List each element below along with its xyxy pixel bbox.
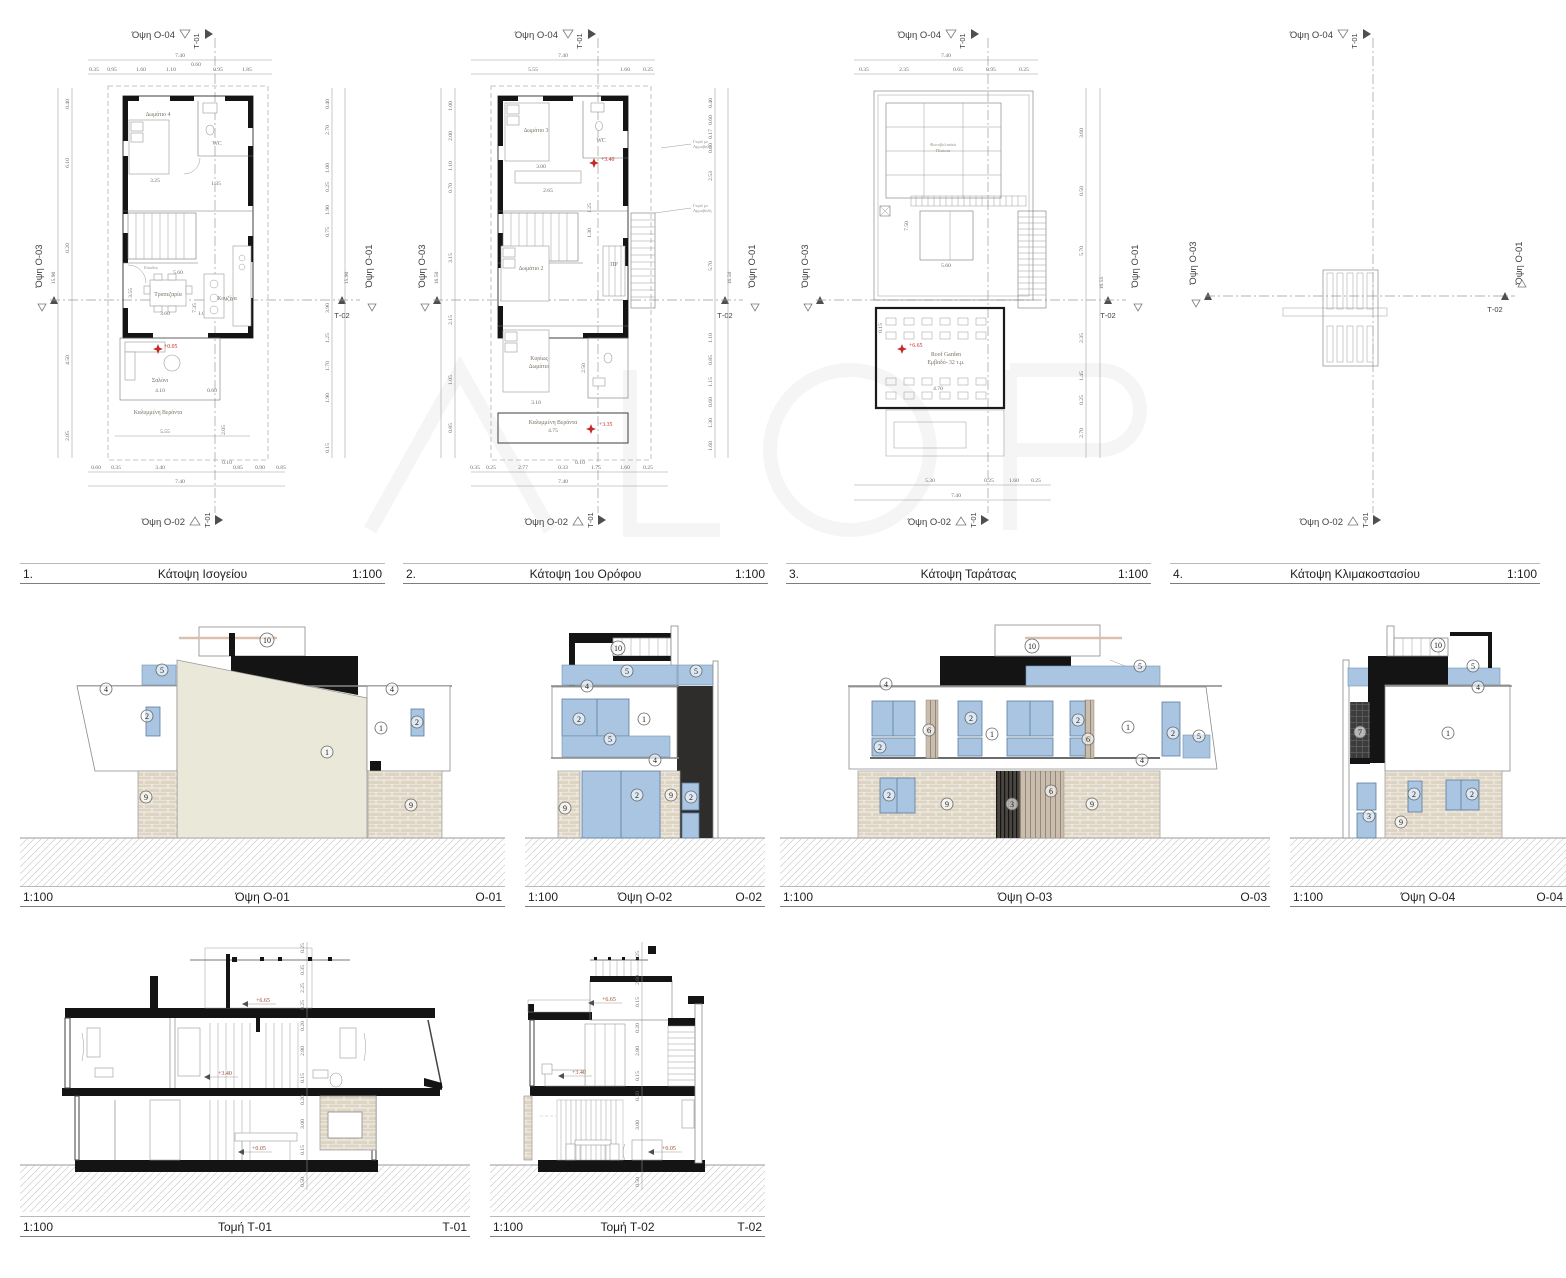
- room-label: Δωμάτιο: [529, 364, 550, 370]
- callout-label: 1: [990, 730, 994, 739]
- dim-label: 0.20: [635, 1023, 641, 1033]
- elevation-o02-titlebar: 1:100 Όψη Ο-02 Ο-02: [525, 886, 765, 907]
- section-label-t01: Τ-01: [586, 512, 595, 527]
- dim-label: 1.30: [708, 418, 714, 428]
- ground-hatch: [525, 838, 765, 886]
- section-arrow-icon: [205, 29, 213, 39]
- dim-label: 0.65: [953, 67, 963, 73]
- stairs: [128, 213, 196, 259]
- dim-label: 0.35: [859, 67, 869, 73]
- edge-label-top: Όψη Ο-04: [514, 30, 558, 41]
- elevation-title: Όψη Ο-02: [618, 890, 673, 904]
- section-label-t01: Τ-01: [1361, 512, 1370, 527]
- dim-label: 0.25: [486, 465, 496, 471]
- room-label: Σαλόνι: [152, 378, 169, 384]
- dim-label: 7.40: [175, 479, 185, 485]
- dim-label: 0.20: [300, 1095, 306, 1105]
- level-label: +3.40: [572, 1070, 586, 1076]
- edge-label-right: Όψη Ο-01: [364, 244, 375, 288]
- callout-label: 5: [160, 666, 164, 675]
- dim-label: 1.60: [1009, 478, 1019, 484]
- room-label: Δωμάτιο 4: [146, 112, 171, 118]
- ground-hatch: [780, 838, 1270, 886]
- dim-label: 3.90: [325, 303, 331, 313]
- callout-label: 4: [585, 682, 589, 691]
- callout-label: 2: [887, 791, 891, 800]
- ground-hatch: [20, 838, 505, 886]
- dim-label: 0.60: [708, 115, 714, 125]
- plan2-dim-left: 1.00 2.00 1.10 0.70 3.15 2.15 1.05 0.85 …: [434, 88, 455, 458]
- elevation-code: Ο-04: [1536, 890, 1563, 904]
- callout-label: 2: [689, 793, 693, 802]
- dim-label: 3.10: [531, 400, 541, 406]
- edge-label-bottom: Όψη Ο-02: [907, 517, 951, 528]
- plan2-notes: Γκριλ με Αμμοβολή Γκριλ με Αμμοβολή: [655, 139, 712, 213]
- section-t01-titlebar: 1:100 Τομή Τ-01 Τ-01: [20, 1216, 470, 1237]
- dim-label: 5.70: [1079, 246, 1085, 256]
- plan2-building: Δωμάτιο 3 3.00 2.65 WC +3.40 1.25 1.30 Δ…: [491, 86, 655, 460]
- dim-label: 4.70: [933, 386, 943, 392]
- t01-dim-chain: 0.25 0.35 2.25 0.25 0.20 2.80 0.15 0.20 …: [300, 942, 307, 1190]
- callout-label: 3: [1010, 800, 1014, 809]
- dim-label: 0.15: [300, 1073, 306, 1083]
- callout-label: 2: [1470, 790, 1474, 799]
- elevation-code: Ο-01: [475, 890, 502, 904]
- callout-label: 9: [563, 804, 567, 813]
- elevation-code: Ο-02: [735, 890, 762, 904]
- dim-label: 3.60: [160, 311, 170, 317]
- dim-label: 0.25: [325, 182, 331, 192]
- o03-lower-slats: [1020, 771, 1064, 838]
- callout-label: 2: [577, 715, 581, 724]
- dim-label: 0.60: [191, 62, 201, 68]
- dim-label: 0.20: [635, 1091, 641, 1101]
- plan1-building: Δωμάτιο 4 3.25 1.35 WC Είσοδος 5.60 3.55…: [108, 86, 268, 460]
- dim-label: 1.45: [1079, 371, 1085, 381]
- elevation-marker-icon: [190, 517, 200, 525]
- plan3-dim-bottom: 5.30 0.25 1.60 0.25 7.40: [854, 478, 1051, 500]
- callout-label: 2: [1076, 716, 1080, 725]
- bathroom: [588, 338, 628, 398]
- ground-hatch: [490, 1165, 765, 1212]
- section-label-t01: Τ-01: [958, 33, 967, 48]
- edge-label-top: Όψη Ο-04: [131, 30, 175, 41]
- dim-label: 0.85: [708, 355, 714, 365]
- callout-label: 2: [1412, 790, 1416, 799]
- callout-label: 5: [625, 667, 629, 676]
- dim-label: 1.60: [136, 67, 146, 73]
- callout-label: 9: [1090, 800, 1094, 809]
- edge-label-top: Όψη Ο-04: [897, 30, 941, 41]
- plan2-dim-right: 0.40 0.60 0.17 0.60 2.53 5.70 1.10 0.85 …: [708, 88, 733, 458]
- elevation-scale: 1:100: [528, 890, 558, 904]
- dim-label: 1.70: [325, 361, 331, 371]
- dim-label: 2.70: [1079, 428, 1085, 438]
- plan3-titlebar: 3. Κάτοψη Ταράτσας 1:100: [786, 563, 1151, 584]
- edge-label-bottom: Όψη Ο-02: [1299, 517, 1343, 528]
- callout-label: 10: [1434, 641, 1442, 650]
- callout-label: 3: [1367, 812, 1371, 821]
- section-code: Τ-01: [442, 1220, 467, 1234]
- t02-desk: [623, 1100, 694, 1160]
- dim-label: 0.15: [635, 997, 641, 1007]
- o02-blue-band-left: [562, 665, 677, 685]
- section-arrow-icon: [215, 515, 223, 525]
- edge-label-left: Όψη Ο-03: [1188, 241, 1199, 285]
- edge-label-bottom: Όψη Ο-02: [141, 517, 185, 528]
- room-label: Κυρίως: [530, 356, 548, 362]
- dim-label: 0.25: [643, 67, 653, 73]
- elevation-code: Ο-03: [1240, 890, 1267, 904]
- callout-label: 4: [653, 756, 657, 765]
- dim-label: 3.00: [635, 1120, 641, 1130]
- callout-label: 1: [1446, 729, 1450, 738]
- dim-label: 1.75: [591, 465, 601, 471]
- level-label: +6.65: [256, 998, 270, 1004]
- plan3-dim-right: 3.60 0.50 5.70 2.35 1.45 0.25 2.70 16.55: [1079, 88, 1105, 458]
- o01-stone-pier-left: [138, 771, 177, 838]
- callout-label: 5: [1197, 732, 1201, 741]
- dim-label: 2.70: [325, 125, 331, 135]
- dim-label: 1.90: [325, 393, 331, 403]
- level-label: +3.40: [601, 157, 615, 163]
- pergola-ticks: [911, 196, 1026, 206]
- dim-label: 0.25: [984, 478, 994, 484]
- dim-label: 1.10: [448, 161, 454, 171]
- callout-label: 5: [608, 735, 612, 744]
- dim-label: 15.90: [344, 272, 350, 285]
- dim-label: 0.15: [325, 443, 331, 453]
- callout-label: 1: [325, 748, 329, 757]
- callout-label: 9: [945, 800, 949, 809]
- roof-unit: [920, 211, 973, 260]
- callout-label: 10: [1028, 642, 1036, 651]
- callout-label: 9: [669, 791, 673, 800]
- elevation-marker-icon: [38, 304, 46, 311]
- dim-label: 7.40: [951, 493, 961, 499]
- elevation-o01: 10 5 4 2 1 4 2 1 9 9: [20, 608, 505, 886]
- plan-title: Κάτοψη Κλιμακοστασίου: [1290, 567, 1420, 581]
- dim-label: 0.35: [300, 965, 306, 975]
- dim-label: 1.25: [587, 203, 593, 213]
- level-label: +0.05: [252, 1146, 266, 1152]
- level-label: +0.05: [164, 344, 178, 350]
- callout-label: 10: [263, 636, 271, 645]
- callout-label: 5: [694, 667, 698, 676]
- closet: [603, 246, 625, 296]
- dim-label: 2.50: [581, 363, 587, 373]
- elevation-o01-titlebar: 1:100 Όψη Ο-01 Ο-01: [20, 886, 505, 907]
- elevation-scale: 1:100: [23, 890, 53, 904]
- section-label-t01: Τ-01: [203, 512, 212, 527]
- dim-label: 0.85: [276, 465, 286, 471]
- plan-first-floor: Όψη Ο-04 Τ-01 Όψη Ο-02 Τ-01 Όψη Ο-03 Όψη…: [403, 8, 768, 560]
- level-label: +3.40: [218, 1071, 232, 1077]
- plan2-centerlines: [433, 38, 743, 513]
- dim-label: 5.55: [528, 67, 538, 73]
- edge-label-top: Όψη Ο-04: [1289, 30, 1333, 41]
- dim-label: 7.40: [941, 53, 951, 59]
- dim-label: 0.40: [65, 99, 71, 109]
- dim-label: 2.00: [448, 131, 454, 141]
- dim-label: 2.05: [221, 425, 227, 435]
- plan3-centerlines: [816, 38, 1126, 513]
- plan1-dim-bottom: 0.60 0.35 3.40 0.10 0.85 0.90 0.85 7.40: [88, 460, 286, 486]
- dim-label: 1.30: [587, 228, 593, 238]
- stairs: [1018, 211, 1046, 308]
- callout-label: 1: [379, 724, 383, 733]
- dim-label: 2.65: [543, 188, 553, 194]
- bed-2: [501, 246, 549, 301]
- edge-label-left: Όψη Ο-03: [800, 244, 811, 288]
- level-marker: +6.65: [897, 343, 923, 354]
- dim-label: 1.90: [325, 205, 331, 215]
- dim-label: 1.60: [708, 441, 714, 451]
- t01-structure: [62, 976, 442, 1172]
- section-label-t01: Τ-01: [969, 512, 978, 527]
- room-label: Roof Garden: [931, 351, 961, 358]
- elevation-title: Όψη Ο-03: [998, 890, 1053, 904]
- plan-number: 3.: [789, 567, 799, 581]
- dim-label: 1.10: [708, 333, 714, 343]
- dim-label: 0.70: [448, 183, 454, 193]
- plan4-titlebar: 4. Κάτοψη Κλιμακοστασίου 1:100: [1170, 563, 1540, 584]
- section-scale: 1:100: [493, 1220, 523, 1234]
- plan4-stair-structure: [1283, 270, 1387, 366]
- section-t02-titlebar: 1:100 Τομή Τ-02 Τ-02: [490, 1216, 765, 1237]
- dim-label: 0.35: [89, 67, 99, 73]
- wc-fixtures: [591, 103, 604, 131]
- section-scale: 1:100: [23, 1220, 53, 1234]
- dim-label: 0.25: [1031, 478, 1041, 484]
- section-label-t01: Τ-01: [1350, 33, 1359, 48]
- dim-label: 0.15: [300, 1145, 306, 1155]
- o01-left-wing: [77, 686, 177, 771]
- callout-label: 4: [1476, 683, 1480, 692]
- dim-label: 1.05: [448, 375, 454, 385]
- t02-stair-shaft: [668, 1018, 695, 1086]
- section-label-t02: Τ-02: [717, 311, 732, 320]
- section-title: Τομή Τ-02: [600, 1220, 654, 1234]
- dim-label: 0.50: [635, 1177, 641, 1187]
- plan-ground-floor: Όψη Ο-04 Τ-01 Όψη Ο-02 Τ-01 Όψη Ο-03 Όψη…: [20, 8, 385, 560]
- roof-hatch-box: [880, 206, 890, 216]
- o02-white-fin: [713, 661, 718, 838]
- section-label-t02: Τ-02: [1487, 305, 1502, 314]
- dim-label: 0.40: [325, 99, 331, 109]
- dim-label: 3.55: [128, 288, 134, 298]
- dim-label: 1.60: [620, 67, 630, 73]
- plan3-dim-top: 7.40 0.35 2.35 0.65 0.95 0.25: [854, 53, 1038, 74]
- dim-label: 0.25: [300, 943, 306, 953]
- dim-label: 16.50: [727, 272, 733, 285]
- callout-label: 4: [884, 680, 888, 689]
- veranda: [498, 413, 628, 443]
- dim-label: 0.95: [107, 67, 117, 73]
- edge-label-bottom: Όψη Ο-02: [524, 517, 568, 528]
- callout-label: 2: [878, 743, 882, 752]
- callout-label: 2: [145, 712, 149, 721]
- plan-scale: 1:100: [352, 567, 382, 581]
- room-label: Είσοδος: [144, 265, 158, 270]
- plan-title: Κάτοψη 1ου Ορόφου: [530, 567, 642, 581]
- plan1-dim-right: 0.40 2.70 1.00 0.25 1.90 0.75 3.90 1.25 …: [325, 88, 350, 458]
- dim-label: 0.95: [986, 67, 996, 73]
- dim-label: 1.15: [708, 377, 714, 387]
- plan-title: Κάτοψη Ισογείου: [158, 567, 247, 581]
- dim-label: 5.60: [941, 263, 951, 269]
- callout-label: 4: [1140, 756, 1144, 765]
- dim-label: 1.35: [211, 181, 221, 187]
- section-t02: +6.65 +3.40 +0.05 0.25 2.60 0.15 0.20 2.…: [490, 928, 765, 1216]
- callout-label: 2: [969, 714, 973, 723]
- ground-hatch: [20, 1165, 470, 1212]
- dim-label: 2.05: [65, 431, 71, 441]
- dim-label: 0.33: [558, 465, 568, 471]
- callout-label: 5: [1471, 662, 1475, 671]
- plan2-titlebar: 2. Κάτοψη 1ου Ορόφου 1:100: [403, 563, 768, 584]
- elevation-o02: 10 5 5 4 2 1 5 4 9 2 9 2: [525, 608, 765, 886]
- elevation-title: Όψη Ο-01: [235, 890, 290, 904]
- dim-label: 1.25: [325, 333, 331, 343]
- plan-scale: 1:100: [1118, 567, 1148, 581]
- plan-stairwell: Όψη Ο-04 Τ-01 Όψη Ο-02 Τ-01 Όψη Ο-03 Όψη…: [1170, 8, 1540, 560]
- callout-label: 6: [1086, 735, 1090, 744]
- dim-label: 0.15: [635, 1071, 641, 1081]
- dim-label: 3.60: [1079, 128, 1085, 138]
- dim-label: 1.10: [166, 67, 176, 73]
- dim-label: 2.77: [518, 465, 528, 471]
- level-label: +6.65: [909, 343, 923, 349]
- exterior-stairs: [631, 213, 655, 308]
- dim-label: 2.25: [300, 983, 306, 993]
- elevation-scale: 1:100: [1293, 890, 1323, 904]
- t01-levels: +6.65 +3.40 +0.05: [204, 998, 276, 1155]
- t01-railing: [190, 948, 350, 1008]
- dim-label: 4.75: [548, 428, 558, 434]
- dim-label: 2.80: [635, 1046, 641, 1056]
- dim-label: 0.25: [1079, 395, 1085, 405]
- room-label: Καλυμμένη Βεράντα: [529, 420, 578, 426]
- dim-label: 0.50: [1079, 186, 1085, 196]
- callout-label: 2: [635, 791, 639, 800]
- dim-label: 0.40: [708, 98, 714, 108]
- dim-label: 2.15: [448, 315, 454, 325]
- dim-label: 5.55: [160, 429, 170, 435]
- dim-label: 6.10: [65, 158, 71, 168]
- note-label: Αμμοβολή: [693, 208, 712, 213]
- elevation-o04: 10 5 4 7 1 2 2 3 9: [1290, 608, 1566, 886]
- plan-title: Κάτοψη Ταράτσας: [921, 567, 1017, 581]
- elevation-o03-titlebar: 1:100 Όψη Ο-03 Ο-03: [780, 886, 1270, 907]
- callout-label: 1: [642, 715, 646, 724]
- room-label: Κουζίνα: [217, 295, 237, 302]
- plan-number: 1.: [23, 567, 33, 581]
- callout-label: 9: [1399, 818, 1403, 827]
- edge-label-right: Όψη Ο-01: [1130, 244, 1141, 288]
- dim-label: 3.00: [300, 1119, 306, 1129]
- room-label: Εμβαδό- 32 τ.μ.: [927, 360, 965, 366]
- ground-hatch: [1290, 838, 1566, 886]
- room-label: WC: [596, 138, 605, 144]
- section-title: Τομή Τ-01: [218, 1220, 272, 1234]
- elevation-title: Όψη Ο-04: [1401, 890, 1456, 904]
- plan1-titlebar: 1. Κάτοψη Ισογείου 1:100: [20, 563, 385, 584]
- dim-label: 1.60: [620, 465, 630, 471]
- callout-label: 1: [1126, 723, 1130, 732]
- dim-label: 3.40: [155, 465, 165, 471]
- plan3-roof: Φωτοβολταϊκά Πλαίσια 7.50 5.60 0.15: [874, 91, 1046, 456]
- dim-label: 2.35: [1079, 333, 1085, 343]
- dim-label: 2.35: [899, 67, 909, 73]
- dim-label: 7.40: [558, 479, 568, 485]
- plan-scale: 1:100: [735, 567, 765, 581]
- section-code: Τ-02: [737, 1220, 762, 1234]
- o01-railing: [179, 627, 305, 656]
- dim-label: 5.30: [925, 478, 935, 484]
- dim-label: 15.90: [51, 272, 57, 285]
- dim-label: 7.40: [558, 53, 568, 59]
- level-label: +3.35: [599, 422, 613, 428]
- callout-label: 4: [104, 685, 108, 694]
- dim-label: 0.35: [111, 465, 121, 471]
- dim-label: 0.35: [470, 465, 480, 471]
- dim-label: 0.25: [635, 951, 641, 961]
- dim-label: 0.25: [643, 465, 653, 471]
- section-label-t01: Τ-01: [192, 33, 201, 48]
- dim-label: 2.53: [708, 171, 714, 181]
- dim-label: 0.10: [222, 460, 232, 466]
- room-label: Δωμάτιο 2: [519, 266, 544, 272]
- dim-label: 7.50: [904, 221, 910, 231]
- dim-label: 3.25: [150, 178, 160, 184]
- note-label: Αμμοβολή: [693, 144, 712, 149]
- dim-label: 0.75: [325, 227, 331, 237]
- edge-label-left: Όψη Ο-03: [34, 244, 45, 288]
- dim-label: 1.00: [448, 101, 454, 111]
- dim-label: 16.55: [1099, 277, 1105, 290]
- dim-label: 5.70: [708, 261, 714, 271]
- dim-label: 0.25: [300, 1000, 306, 1010]
- dim-label: 7.35: [192, 303, 198, 313]
- room-label: ΠΡ: [610, 262, 617, 268]
- room-label: Καλυμμένη Βεράντα: [134, 410, 183, 416]
- bed-4: [129, 120, 169, 174]
- section-t01: +6.65 +3.40 +0.05 0.25 0.35 2.25 0.25 0.…: [20, 928, 470, 1216]
- dim-label: 0.25: [1019, 67, 1029, 73]
- dim-label: 2.80: [300, 1046, 306, 1056]
- edge-label-right: Όψη Ο-01: [747, 244, 758, 288]
- dim-label: 0.17: [708, 129, 714, 139]
- dim-label: 0.10: [575, 460, 585, 466]
- dim-label: 0.60: [708, 397, 714, 407]
- dim-label: 0.60: [207, 388, 217, 394]
- plan4-centerlines: [1205, 38, 1515, 513]
- o03-slat-strip: [1085, 700, 1094, 758]
- dim-label: 0.60: [91, 465, 101, 471]
- level-marker: +3.40: [589, 157, 615, 168]
- plan-scale: 1:100: [1507, 567, 1537, 581]
- section-label-t02: Τ-02: [334, 311, 349, 320]
- dim-label: 3.00: [536, 164, 546, 170]
- dim-label: 4.50: [65, 355, 71, 365]
- level-marker: +3.35: [586, 422, 613, 434]
- room-label: Φωτοβολταϊκά: [930, 142, 957, 147]
- callout-label: 2: [1171, 729, 1175, 738]
- dim-label: 4.10: [155, 388, 165, 394]
- dim-label: 0.15: [878, 323, 884, 333]
- level-label: +6.65: [602, 997, 616, 1003]
